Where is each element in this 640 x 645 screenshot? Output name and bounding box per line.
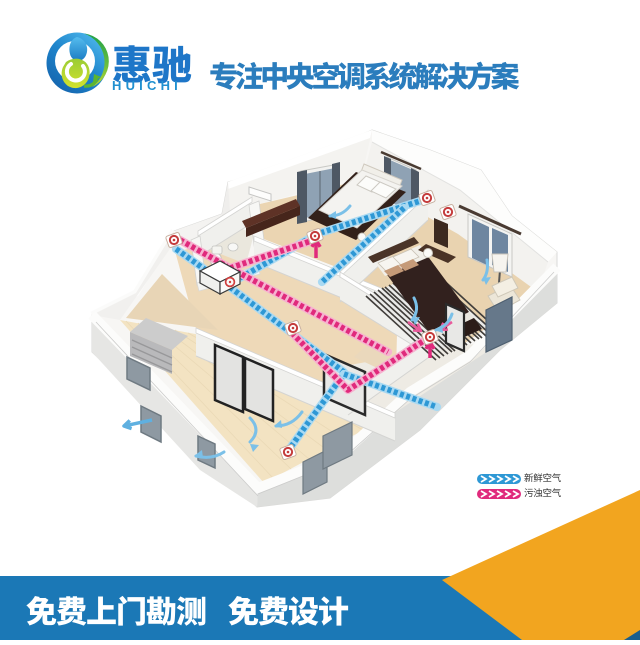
svg-text:HUICHI: HUICHI	[112, 78, 182, 93]
